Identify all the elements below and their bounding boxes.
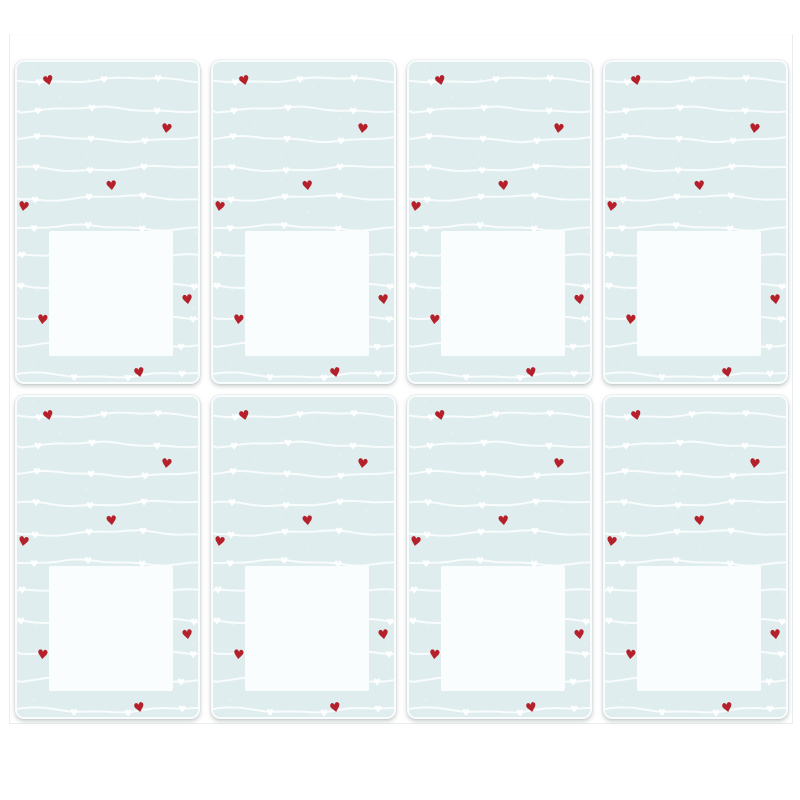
speckle-dot <box>113 161 115 163</box>
speckle-dot <box>428 624 431 627</box>
speckle-dot <box>757 175 760 178</box>
white-heart-icon: ♥ <box>570 705 579 716</box>
garland-line <box>603 530 788 536</box>
garland-line <box>211 224 396 230</box>
speckle-dot <box>505 161 507 163</box>
speckle-dot <box>621 699 624 702</box>
white-heart-icon: ♥ <box>426 442 435 453</box>
red-heart-icon: ♥ <box>231 313 245 327</box>
speckle-dot <box>476 514 478 516</box>
white-heart-icon: ♥ <box>479 135 488 146</box>
garland-line <box>407 107 592 113</box>
white-heart-icon: ♥ <box>337 472 346 483</box>
white-heart-icon: ♥ <box>423 531 432 542</box>
speckle-dot <box>674 129 675 130</box>
white-heart-icon: ♥ <box>227 531 236 542</box>
speckle-dot <box>254 457 256 459</box>
white-heart-icon: ♥ <box>477 528 486 539</box>
garland-line <box>407 195 592 201</box>
speckle-dot <box>428 289 431 292</box>
white-heart-icon: ♥ <box>676 438 685 449</box>
speckle-dot <box>61 706 63 708</box>
speckle-dot <box>58 122 60 124</box>
speckle-dot <box>89 713 90 714</box>
white-heart-icon: ♥ <box>100 75 109 86</box>
sticker-grid: ♥♥♥♥♥♥♥♥♥♥♥♥♥♥♥♥♥♥♥♥♥♥♥♥♥♥♥♥♥♥♥♥♥♥♥♥♥♥♥♥… <box>15 60 788 719</box>
white-heart-icon: ♥ <box>178 705 187 716</box>
white-heart-icon: ♥ <box>373 343 382 354</box>
blank-label-area <box>49 231 173 356</box>
white-heart-icon: ♥ <box>31 196 40 207</box>
speckle-dot <box>508 86 510 88</box>
white-heart-icon: ♥ <box>349 442 358 453</box>
speckle-dot <box>672 179 674 181</box>
sticker-card-3: ♥♥♥♥♥♥♥♥♥♥♥♥♥♥♥♥♥♥♥♥♥♥♥♥♥♥♥♥♥♥♥♥♥♥♥♥♥♥♥♥… <box>407 60 592 384</box>
white-heart-icon: ♥ <box>32 498 41 509</box>
speckle-dot <box>452 72 453 73</box>
white-heart-icon: ♥ <box>213 617 222 628</box>
red-heart-icon: ♥ <box>180 293 195 308</box>
speckle-dot <box>232 624 235 627</box>
speckle-dot <box>386 692 387 693</box>
red-heart-icon: ♥ <box>40 74 56 90</box>
white-heart-icon: ♥ <box>545 442 554 453</box>
garland-line <box>603 442 788 448</box>
red-heart-icon: ♥ <box>355 122 370 137</box>
blank-label-area <box>441 566 565 691</box>
white-heart-icon: ♥ <box>606 585 615 596</box>
red-heart-icon: ♥ <box>496 179 510 193</box>
speckle-dot <box>233 599 234 600</box>
white-heart-icon: ♥ <box>178 370 187 381</box>
speckle-dot <box>704 86 706 88</box>
red-heart-icon: ♥ <box>231 648 245 662</box>
speckle-dot <box>59 97 62 100</box>
white-heart-icon: ♥ <box>32 163 41 174</box>
speckle-dot <box>256 407 257 408</box>
red-heart-icon: ♥ <box>40 409 56 425</box>
red-heart-icon: ♥ <box>327 366 342 381</box>
red-heart-icon: ♥ <box>719 701 734 716</box>
speckle-dot <box>782 592 784 594</box>
speckle-dot <box>339 118 342 121</box>
garland-line <box>603 707 788 712</box>
red-heart-icon: ♥ <box>572 293 587 308</box>
white-heart-icon: ♥ <box>140 162 149 173</box>
white-heart-icon: ♥ <box>712 708 721 719</box>
red-heart-icon: ♥ <box>211 200 226 215</box>
garland-line <box>15 166 200 171</box>
speckle-dot <box>701 496 703 498</box>
white-heart-icon: ♥ <box>30 224 39 235</box>
speckle-dot <box>452 407 453 408</box>
speckle-dot <box>703 111 704 112</box>
speckle-dot <box>619 90 620 91</box>
red-heart-icon: ♥ <box>159 457 174 472</box>
speckle-dot <box>256 72 257 73</box>
speckle-dot <box>625 264 626 265</box>
red-heart-icon: ♥ <box>15 535 30 550</box>
white-heart-icon: ♥ <box>283 470 292 481</box>
blank-label-area <box>245 566 369 691</box>
speckle-dot <box>285 713 286 714</box>
red-heart-icon: ♥ <box>35 313 49 327</box>
garland-line <box>211 530 396 536</box>
garland-line <box>407 166 592 171</box>
speckle-dot <box>33 699 36 702</box>
white-heart-icon: ♥ <box>153 107 162 118</box>
red-heart-icon: ♥ <box>432 74 448 90</box>
white-heart-icon: ♥ <box>410 250 419 261</box>
speckle-dot <box>588 207 589 208</box>
white-heart-icon: ♥ <box>658 708 667 719</box>
speckle-dot <box>191 332 193 334</box>
speckle-dot <box>646 122 648 124</box>
speckle-dot <box>194 257 196 259</box>
white-heart-icon: ♥ <box>18 250 27 261</box>
white-heart-icon: ♥ <box>516 373 525 384</box>
red-heart-icon: ♥ <box>603 200 618 215</box>
white-heart-icon: ♥ <box>570 370 579 381</box>
speckle-dot <box>778 357 779 358</box>
speckle-dot <box>624 624 627 627</box>
speckle-dot <box>139 553 141 555</box>
white-heart-icon: ♥ <box>385 315 394 326</box>
white-heart-icon: ♥ <box>620 163 629 174</box>
speckle-dot <box>778 692 779 693</box>
speckle-dot <box>503 211 506 214</box>
white-heart-icon: ♥ <box>350 74 359 85</box>
speckle-dot <box>228 400 230 402</box>
white-heart-icon: ♥ <box>531 526 540 537</box>
garland-line <box>603 136 788 142</box>
speckle-dot <box>621 364 624 367</box>
garland-line <box>15 224 200 230</box>
white-heart-icon: ♥ <box>373 678 382 689</box>
speckle-dot <box>531 218 533 220</box>
sticker-card-7: ♥♥♥♥♥♥♥♥♥♥♥♥♥♥♥♥♥♥♥♥♥♥♥♥♥♥♥♥♥♥♥♥♥♥♥♥♥♥♥♥… <box>407 395 592 719</box>
speckle-dot <box>255 432 258 435</box>
speckle-dot <box>453 706 455 708</box>
speckle-dot <box>425 699 428 702</box>
garland-line <box>407 707 592 712</box>
speckle-dot <box>647 432 650 435</box>
speckle-dot <box>423 90 424 91</box>
red-heart-icon: ♥ <box>768 628 783 643</box>
speckle-dot <box>37 599 38 600</box>
white-heart-icon: ♥ <box>621 467 630 478</box>
speckle-dot <box>364 200 366 202</box>
speckle-dot <box>531 553 533 555</box>
white-heart-icon: ♥ <box>516 708 525 719</box>
garland-line <box>211 166 396 171</box>
speckle-dot <box>561 175 564 178</box>
speckle-dot <box>34 339 35 340</box>
speckle-dot <box>312 421 314 423</box>
white-heart-icon: ♥ <box>777 315 786 326</box>
white-heart-icon: ♥ <box>622 107 631 118</box>
white-heart-icon: ♥ <box>124 373 133 384</box>
garland-line <box>15 195 200 201</box>
speckle-dot <box>233 264 234 265</box>
speckle-dot <box>310 136 313 139</box>
white-heart-icon: ♥ <box>177 343 186 354</box>
speckle-dot <box>282 464 283 465</box>
garland-line <box>407 471 592 477</box>
speckle-dot <box>280 514 282 516</box>
blank-label-area <box>441 231 565 356</box>
speckle-dot <box>583 332 585 334</box>
red-heart-icon: ♥ <box>496 514 510 528</box>
white-heart-icon: ♥ <box>296 75 305 86</box>
white-heart-icon: ♥ <box>139 526 148 537</box>
garland-line <box>211 707 396 712</box>
speckle-dot <box>257 706 259 708</box>
speckle-dot <box>649 371 651 373</box>
speckle-dot <box>506 471 509 474</box>
white-heart-icon: ♥ <box>320 373 329 384</box>
white-heart-icon: ♥ <box>284 438 293 449</box>
red-heart-icon: ♥ <box>747 457 762 472</box>
white-heart-icon: ♥ <box>228 498 237 509</box>
garland-line <box>407 136 592 142</box>
product-photo: ♥♥♥♥♥♥♥♥♥♥♥♥♥♥♥♥♥♥♥♥♥♥♥♥♥♥♥♥♥♥♥♥♥♥♥♥♥♥♥♥… <box>0 0 800 800</box>
speckle-dot <box>387 667 389 669</box>
speckle-dot <box>111 211 114 214</box>
speckle-dot <box>784 542 785 543</box>
red-heart-icon: ♥ <box>376 628 391 643</box>
red-heart-icon: ♥ <box>407 535 422 550</box>
speckle-dot <box>478 464 479 465</box>
speckle-dot <box>704 421 706 423</box>
speckle-dot <box>86 129 87 130</box>
white-heart-icon: ♥ <box>31 531 40 542</box>
white-heart-icon: ♥ <box>385 650 394 661</box>
speckle-dot <box>588 542 589 543</box>
speckle-dot <box>229 699 232 702</box>
speckle-dot <box>61 371 63 373</box>
speckle-dot <box>476 179 478 181</box>
red-heart-icon: ♥ <box>427 313 441 327</box>
garland-line <box>211 442 396 448</box>
white-heart-icon: ♥ <box>478 166 487 177</box>
garland-line <box>211 501 396 506</box>
white-heart-icon: ♥ <box>480 438 489 449</box>
white-heart-icon: ♥ <box>581 650 590 661</box>
white-heart-icon: ♥ <box>70 708 79 719</box>
white-heart-icon: ♥ <box>281 528 290 539</box>
garland-line <box>211 372 396 377</box>
speckle-dot <box>647 97 650 100</box>
speckle-dot <box>702 136 705 139</box>
speckle-dot <box>622 339 623 340</box>
speckle-dot <box>227 90 228 91</box>
garland-line <box>15 107 200 113</box>
white-heart-icon: ♥ <box>741 107 750 118</box>
speckle-dot <box>646 457 648 459</box>
garland-line <box>603 501 788 506</box>
white-heart-icon: ♥ <box>569 343 578 354</box>
speckle-dot <box>196 207 197 208</box>
sticker-card-5: ♥♥♥♥♥♥♥♥♥♥♥♥♥♥♥♥♥♥♥♥♥♥♥♥♥♥♥♥♥♥♥♥♥♥♥♥♥♥♥♥… <box>15 395 200 719</box>
white-heart-icon: ♥ <box>533 472 542 483</box>
garland-line <box>211 107 396 113</box>
speckle-dot <box>620 65 622 67</box>
garland-line <box>15 707 200 712</box>
white-heart-icon: ♥ <box>18 585 27 596</box>
white-heart-icon: ♥ <box>478 501 487 512</box>
speckle-dot <box>387 332 389 334</box>
red-heart-icon: ♥ <box>131 366 146 381</box>
white-heart-icon: ♥ <box>214 585 223 596</box>
speckle-dot <box>757 510 760 513</box>
white-heart-icon: ♥ <box>87 135 96 146</box>
speckle-dot <box>307 546 310 549</box>
blank-label-area <box>49 566 173 691</box>
speckle-dot <box>115 111 116 112</box>
white-heart-icon: ♥ <box>296 410 305 421</box>
speckle-dot <box>143 118 146 121</box>
speckle-dot <box>478 129 479 130</box>
white-heart-icon: ♥ <box>742 409 751 420</box>
garland-line <box>603 559 788 565</box>
speckle-dot <box>169 175 172 178</box>
speckle-dot <box>31 425 32 426</box>
white-heart-icon: ♥ <box>480 103 489 114</box>
white-heart-icon: ♥ <box>621 132 630 143</box>
speckle-dot <box>649 706 651 708</box>
white-heart-icon: ♥ <box>729 472 738 483</box>
speckle-dot <box>31 90 32 91</box>
white-heart-icon: ♥ <box>266 373 275 384</box>
white-heart-icon: ♥ <box>688 410 697 421</box>
speckle-dot <box>727 218 729 220</box>
white-heart-icon: ♥ <box>422 224 431 235</box>
speckle-dot <box>191 667 193 669</box>
speckle-dot <box>506 136 509 139</box>
speckle-dot <box>168 535 170 537</box>
sticker-card-4: ♥♥♥♥♥♥♥♥♥♥♥♥♥♥♥♥♥♥♥♥♥♥♥♥♥♥♥♥♥♥♥♥♥♥♥♥♥♥♥♥… <box>603 60 788 384</box>
speckle-dot <box>312 86 314 88</box>
white-heart-icon: ♥ <box>141 137 150 148</box>
speckle-dot <box>756 535 758 537</box>
white-heart-icon: ♥ <box>229 132 238 143</box>
speckle-dot <box>229 364 232 367</box>
speckle-dot <box>254 122 256 124</box>
speckle-dot <box>561 510 564 513</box>
white-heart-icon: ♥ <box>139 191 148 202</box>
white-heart-icon: ♥ <box>409 617 418 628</box>
speckle-dot <box>116 86 118 88</box>
speckle-dot <box>587 567 590 570</box>
white-heart-icon: ♥ <box>492 410 501 421</box>
speckle-dot <box>624 289 627 292</box>
white-heart-icon: ♥ <box>374 370 383 381</box>
white-heart-icon: ♥ <box>230 442 239 453</box>
garland-line <box>211 559 396 565</box>
speckle-dot <box>755 225 756 226</box>
red-heart-icon: ♥ <box>300 514 314 528</box>
white-heart-icon: ♥ <box>622 442 631 453</box>
white-heart-icon: ♥ <box>284 103 293 114</box>
white-heart-icon: ♥ <box>777 650 786 661</box>
red-heart-icon: ♥ <box>623 648 637 662</box>
speckle-dot <box>451 432 454 435</box>
speckle-dot <box>429 599 430 600</box>
red-heart-icon: ♥ <box>236 74 252 90</box>
speckle-dot <box>190 357 191 358</box>
garland-line <box>407 530 592 536</box>
speckle-dot <box>85 489 88 492</box>
red-heart-icon: ♥ <box>747 122 762 137</box>
white-heart-icon: ♥ <box>712 373 721 384</box>
speckle-dot <box>672 514 674 516</box>
white-heart-icon: ♥ <box>34 107 43 118</box>
white-heart-icon: ♥ <box>426 107 435 118</box>
speckle-dot <box>477 489 480 492</box>
speckle-dot <box>60 72 61 73</box>
white-heart-icon: ♥ <box>674 501 683 512</box>
speckle-dot <box>139 218 141 220</box>
speckle-dot <box>779 332 781 334</box>
white-heart-icon: ♥ <box>141 472 150 483</box>
speckle-dot <box>168 200 170 202</box>
white-heart-icon: ♥ <box>619 531 628 542</box>
speckle-dot <box>60 407 61 408</box>
speckle-dot <box>582 357 583 358</box>
speckle-dot <box>429 264 430 265</box>
speckle-dot <box>363 560 364 561</box>
speckle-dot <box>32 65 34 67</box>
red-heart-icon: ♥ <box>628 74 644 90</box>
red-heart-icon: ♥ <box>623 313 637 327</box>
garland-line <box>603 195 788 201</box>
white-heart-icon: ♥ <box>546 74 555 85</box>
white-heart-icon: ♥ <box>140 497 149 508</box>
white-heart-icon: ♥ <box>673 193 682 204</box>
white-heart-icon: ♥ <box>766 705 775 716</box>
speckle-dot <box>505 496 507 498</box>
red-heart-icon: ♥ <box>15 200 30 215</box>
speckle-dot <box>114 471 117 474</box>
speckle-dot <box>310 471 313 474</box>
red-heart-icon: ♥ <box>603 535 618 550</box>
white-heart-icon: ♥ <box>676 103 685 114</box>
speckle-dot <box>756 200 758 202</box>
speckle-dot <box>282 129 283 130</box>
speckle-dot <box>507 446 508 447</box>
speckle-dot <box>232 289 235 292</box>
red-heart-icon: ♥ <box>551 457 566 472</box>
red-heart-icon: ♥ <box>300 179 314 193</box>
red-heart-icon: ♥ <box>551 122 566 137</box>
speckle-dot <box>586 257 588 259</box>
blank-label-area <box>637 231 761 356</box>
garland-line <box>211 136 396 142</box>
white-heart-icon: ♥ <box>34 442 43 453</box>
garland-line <box>15 559 200 565</box>
speckle-dot <box>84 179 86 181</box>
speckle-dot <box>702 471 705 474</box>
speckle-dot <box>335 218 337 220</box>
white-heart-icon: ♥ <box>281 193 290 204</box>
speckle-dot <box>701 161 703 163</box>
white-heart-icon: ♥ <box>88 103 97 114</box>
speckle-dot <box>731 453 734 456</box>
white-heart-icon: ♥ <box>374 705 383 716</box>
garland-line <box>603 107 788 113</box>
white-heart-icon: ♥ <box>17 617 26 628</box>
